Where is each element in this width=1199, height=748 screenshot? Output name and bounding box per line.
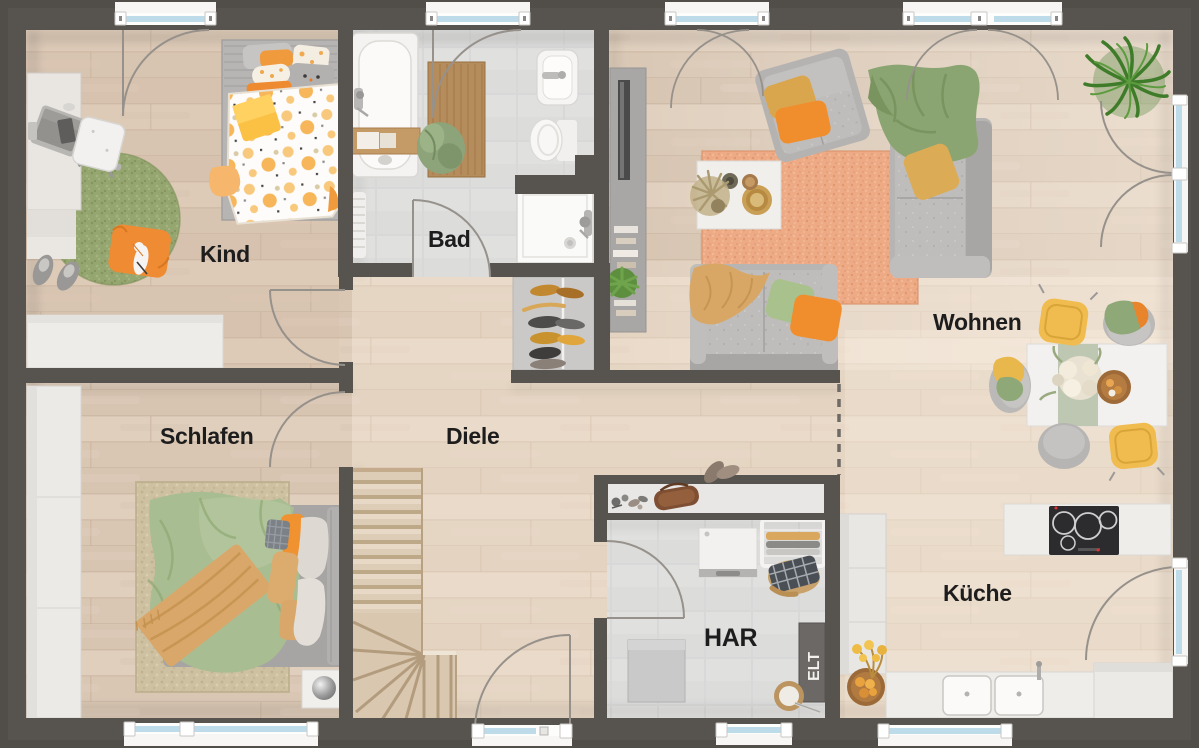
svg-text:Küche: Küche: [943, 580, 1012, 606]
svg-text:Wohnen: Wohnen: [933, 309, 1021, 335]
svg-text:Kind: Kind: [200, 241, 250, 267]
svg-text:ELT: ELT: [806, 652, 823, 681]
svg-text:Diele: Diele: [446, 423, 499, 449]
svg-text:Bad: Bad: [428, 226, 471, 252]
svg-text:Schlafen: Schlafen: [160, 423, 253, 449]
svg-text:HAR: HAR: [704, 624, 758, 652]
